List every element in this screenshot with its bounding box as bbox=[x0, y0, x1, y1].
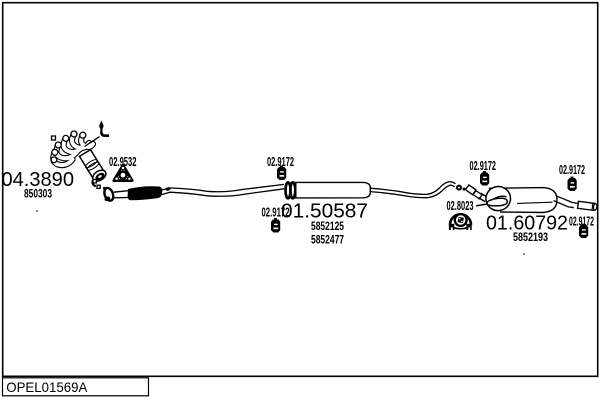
svg-text:OPEL01569A: OPEL01569A bbox=[6, 379, 88, 395]
svg-text:5852193: 5852193 bbox=[513, 232, 548, 244]
svg-text:01.50587: 01.50587 bbox=[281, 200, 368, 223]
svg-text:850303: 850303 bbox=[24, 189, 52, 201]
svg-text:5852125: 5852125 bbox=[311, 221, 344, 233]
svg-text:02.9172: 02.9172 bbox=[470, 159, 497, 173]
svg-text:5852477: 5852477 bbox=[311, 235, 344, 247]
svg-text:02.8023: 02.8023 bbox=[447, 199, 474, 213]
svg-text:02.9172: 02.9172 bbox=[559, 163, 585, 177]
